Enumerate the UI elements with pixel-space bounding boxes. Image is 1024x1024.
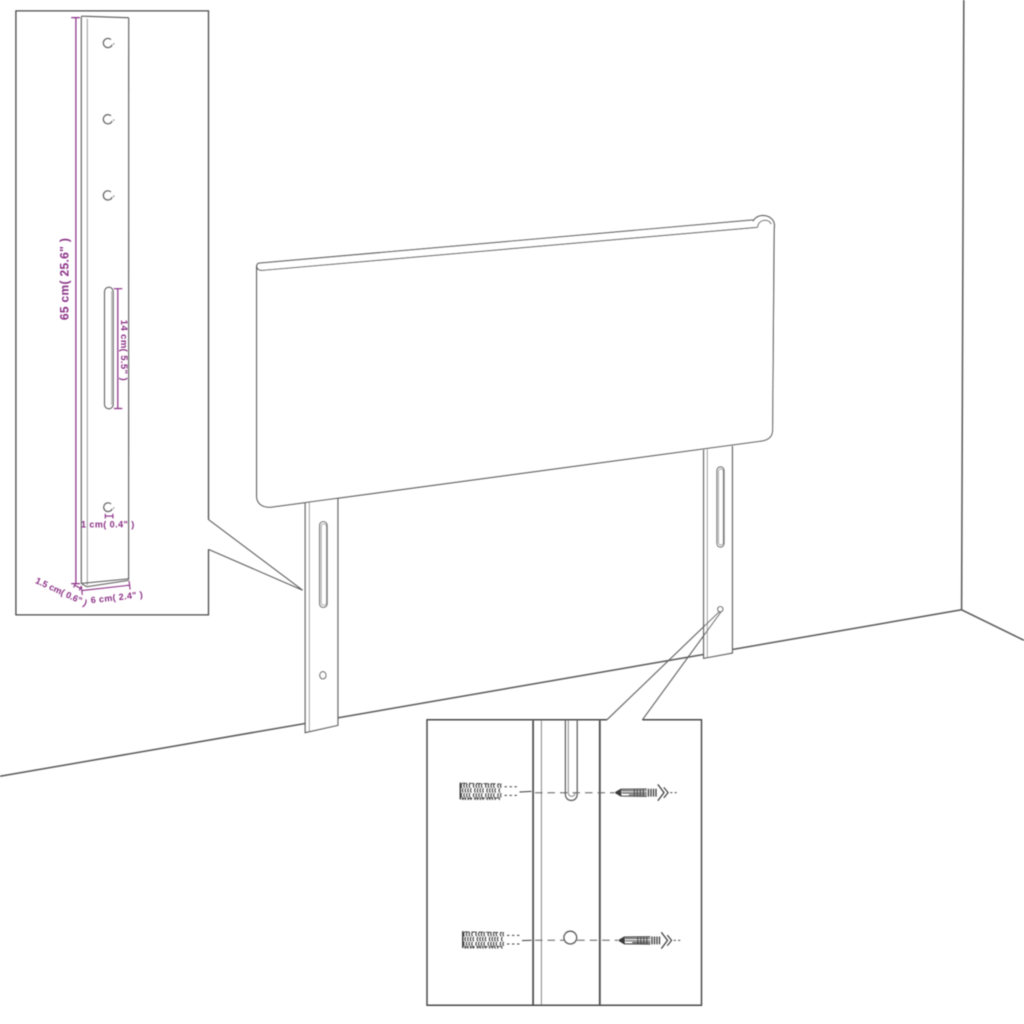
svg-text:1 cm( 0.4" ): 1 cm( 0.4" ) [81, 520, 135, 530]
svg-text:14 cm( 5.5" ): 14 cm( 5.5" ) [118, 320, 129, 381]
svg-text:65 cm( 25.6" ): 65 cm( 25.6" ) [57, 238, 71, 320]
